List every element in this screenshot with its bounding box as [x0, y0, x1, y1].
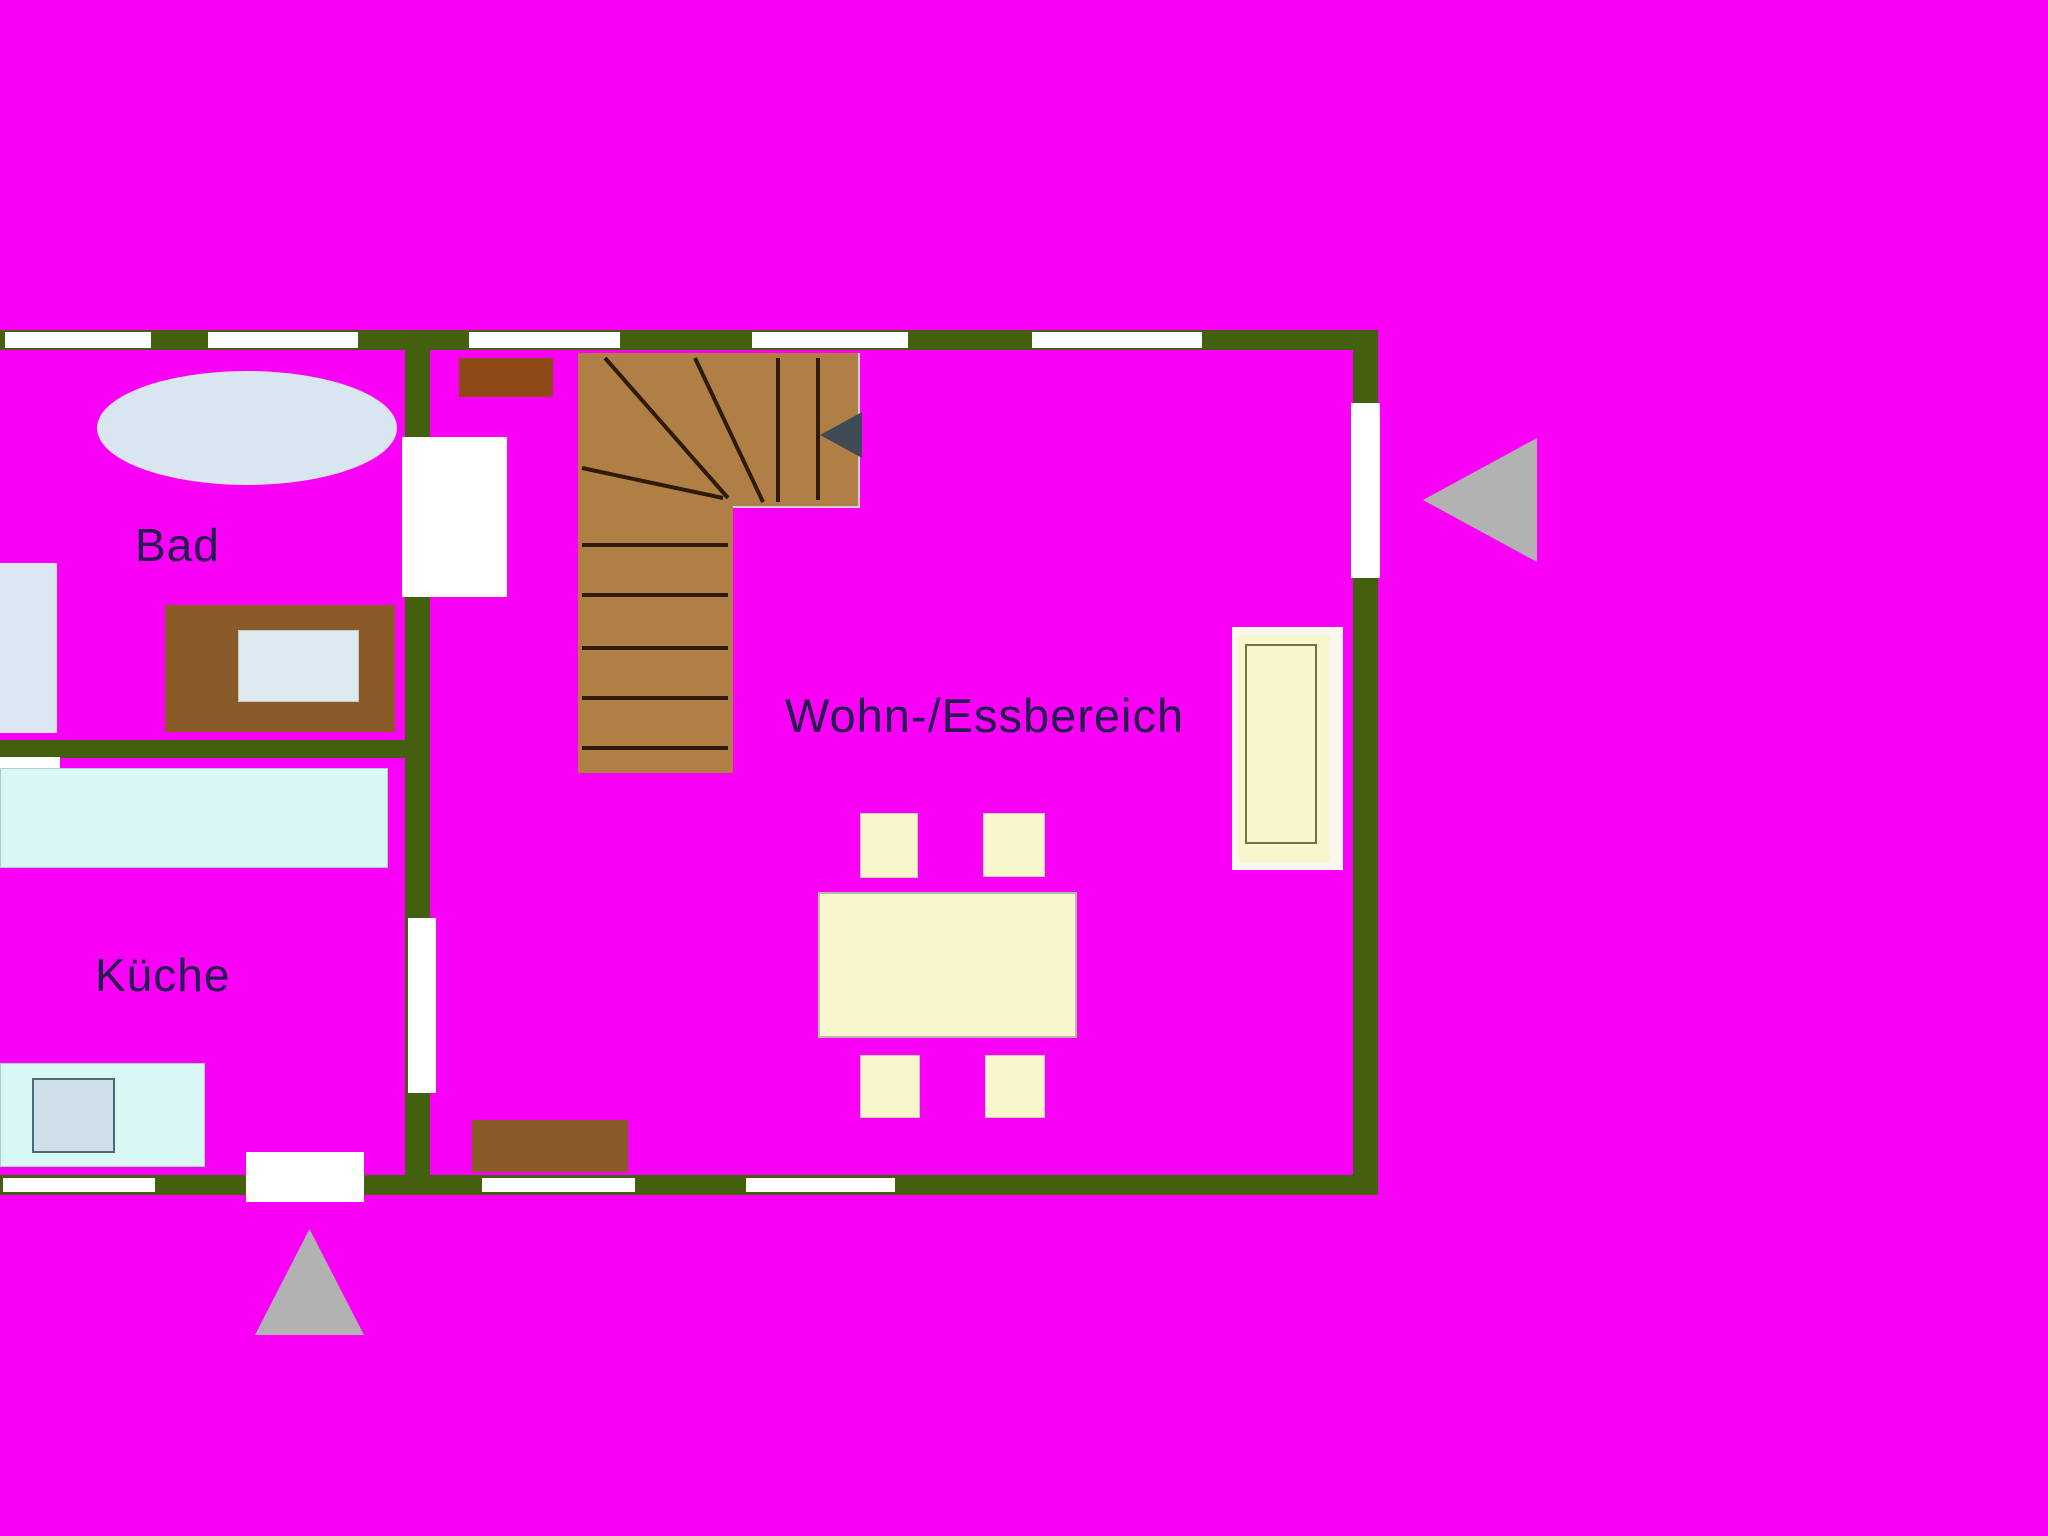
- window-bottom-1: [3, 1178, 155, 1192]
- window-bottom-3: [746, 1178, 895, 1192]
- toilet-unit: [165, 605, 395, 732]
- chair-bottom-left: [860, 1055, 920, 1118]
- bath-sink-counter: [0, 563, 57, 733]
- chair-top-right: [983, 813, 1045, 877]
- wall-divider-bad-kueche: [0, 740, 430, 758]
- window-right-wall: [1351, 403, 1380, 578]
- sofa-body: [1238, 635, 1330, 862]
- door-bottom-entrance: [246, 1152, 364, 1202]
- door-kueche: [408, 918, 436, 1093]
- entrance-arrow-right-icon: [1423, 438, 1537, 562]
- window-top-3: [469, 332, 620, 348]
- room-label-kueche: Küche: [95, 952, 230, 998]
- chair-top-left: [860, 813, 918, 878]
- kitchen-counter-bottom: [0, 1063, 205, 1167]
- kitchen-sink: [32, 1078, 115, 1153]
- sofa: [1232, 627, 1343, 870]
- sideboard-top: [459, 358, 553, 397]
- staircase-lower-flight: [578, 353, 733, 773]
- opening-divider-left: [0, 757, 60, 768]
- sideboard-bottom: [472, 1120, 628, 1172]
- wall-bottom: [0, 1175, 1378, 1195]
- window-top-4: [752, 332, 908, 348]
- window-top-2: [208, 332, 358, 348]
- sofa-seat-outline: [1245, 644, 1317, 844]
- door-bad: [402, 437, 507, 597]
- entrance-arrow-bottom-icon: [255, 1229, 364, 1335]
- toilet-bowl: [238, 630, 359, 702]
- window-top-1: [5, 332, 151, 348]
- floor-plan-canvas: Bad Küche Wohn-/Essbereich: [0, 0, 2048, 1536]
- kitchen-counter-top: [0, 768, 388, 868]
- dining-table: [818, 892, 1077, 1038]
- window-bottom-2: [482, 1178, 635, 1192]
- chair-bottom-right: [985, 1055, 1045, 1118]
- room-label-bad: Bad: [135, 522, 220, 568]
- bathtub: [97, 371, 397, 485]
- room-label-wohn-essbereich: Wohn-/Essbereich: [785, 692, 1184, 739]
- window-top-5: [1032, 332, 1202, 348]
